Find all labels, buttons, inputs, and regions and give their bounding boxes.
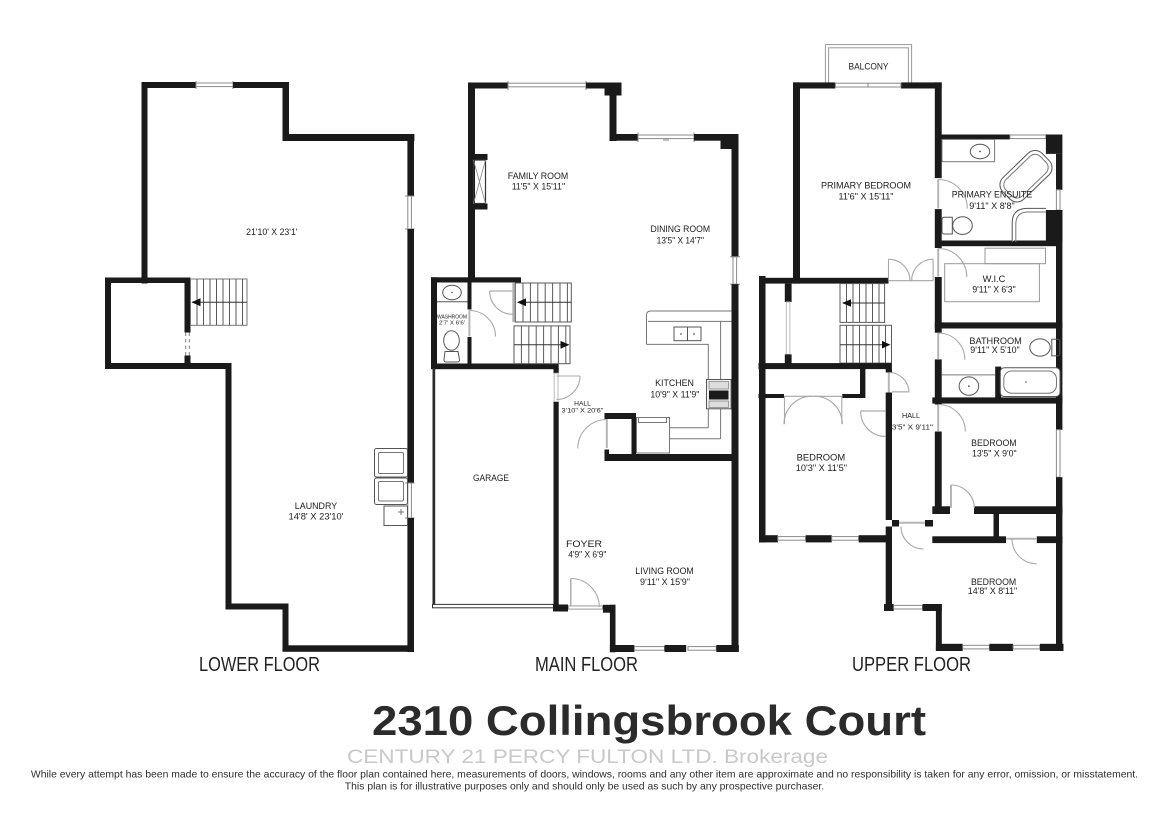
svg-text:While every attempt has been m: While every attempt has been made to ens… <box>31 770 1138 781</box>
svg-text:KITCHEN: KITCHEN <box>655 378 694 389</box>
svg-text:PRIMARY BEDROOM: PRIMARY BEDROOM <box>821 181 911 192</box>
svg-text:9'11" X 5'10": 9'11" X 5'10" <box>970 345 1019 356</box>
svg-text:This plan is for illustrative: This plan is for illustrative purposes o… <box>345 782 824 793</box>
svg-text:LAUNDRY: LAUNDRY <box>295 501 338 512</box>
svg-text:2'7' X 6'6': 2'7' X 6'6' <box>439 321 465 327</box>
svg-text:MAIN FLOOR: MAIN FLOOR <box>535 654 638 676</box>
svg-text:LOWER FLOOR: LOWER FLOOR <box>199 654 320 676</box>
svg-text:4'9" X 6'9": 4'9" X 6'9" <box>568 549 606 560</box>
svg-text:14'8" X 8'11": 14'8" X 8'11" <box>968 586 1017 597</box>
svg-text:LIVING ROOM: LIVING ROOM <box>635 566 693 577</box>
svg-text:13'5" X 14'7": 13'5" X 14'7" <box>657 236 704 247</box>
svg-text:BEDROOM: BEDROOM <box>971 438 1017 449</box>
svg-text:HALL: HALL <box>574 401 592 407</box>
svg-text:BEDROOM: BEDROOM <box>797 453 846 464</box>
svg-text:11'5" X 15'11": 11'5" X 15'11" <box>512 181 565 192</box>
svg-text:UPPER FLOOR: UPPER FLOOR <box>852 654 971 676</box>
svg-text:BALCONY: BALCONY <box>849 62 889 72</box>
svg-text:21'10' X 23'1': 21'10' X 23'1' <box>246 227 298 238</box>
svg-text:HALL: HALL <box>902 411 920 420</box>
svg-text:10'9" X 11'9": 10'9" X 11'9" <box>650 389 699 400</box>
svg-text:2310 Collingsbrook Court: 2310 Collingsbrook Court <box>372 697 926 744</box>
svg-text:DINING ROOM: DINING ROOM <box>650 224 710 235</box>
svg-text:11'6" X 15'11": 11'6" X 15'11" <box>839 191 894 202</box>
svg-text:10'3" X 11'5": 10'3" X 11'5" <box>796 463 847 474</box>
svg-text:FOYER: FOYER <box>566 539 602 550</box>
svg-text:9'11" X 15'9": 9'11" X 15'9" <box>640 577 690 588</box>
svg-text:14'8' X 23'10': 14'8' X 23'10' <box>289 512 344 523</box>
svg-text:13'5" X 9'0": 13'5" X 9'0" <box>972 449 1017 460</box>
svg-text:9'11" X 8'8": 9'11" X 8'8" <box>969 201 1015 212</box>
svg-text:9'11" X 6'3": 9'11" X 6'3" <box>972 284 1015 295</box>
svg-text:PRIMARY ENSUITE: PRIMARY ENSUITE <box>952 189 1032 200</box>
svg-text:CENTURY 21 PERCY FULTON LTD.: CENTURY 21 PERCY FULTON LTD. Brokerage <box>347 747 828 768</box>
svg-text:3'10" X 20'6": 3'10" X 20'6" <box>562 409 604 415</box>
svg-text:3'5" X 9'11": 3'5" X 9'11" <box>892 422 933 431</box>
svg-text:GARAGE: GARAGE <box>473 473 509 484</box>
